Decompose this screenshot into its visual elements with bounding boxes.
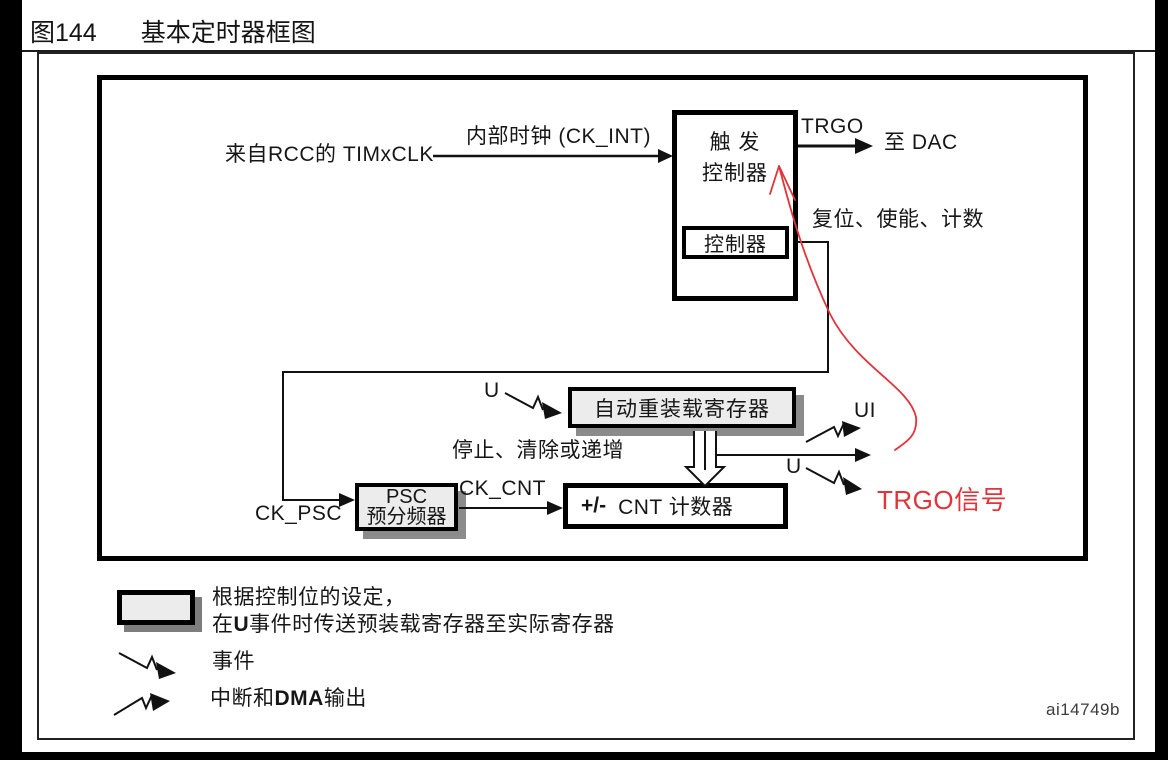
label-ui-interrupt: UI — [854, 400, 876, 423]
trigger-controller-block: 触 发 控制器 — [672, 110, 798, 301]
label-ck-cnt: CK_CNT — [459, 478, 546, 501]
prescaler-block: PSC 预分频器 — [355, 483, 458, 531]
label-u-event-out: U — [786, 456, 802, 479]
counter-block: +/- CNT 计数器 — [563, 483, 788, 529]
scan-edge-right — [1155, 0, 1168, 760]
figure-number: 图144 — [30, 13, 97, 49]
label-reset-enable-count: 复位、使能、计数 — [812, 209, 984, 232]
trigger-controller-label: 触 发 控制器 — [677, 127, 793, 189]
legend-note-line2: 在U事件时传送预装载寄存器至实际寄存器 — [212, 611, 615, 638]
figure-title: 图144 基本定时器框图 — [30, 13, 316, 49]
legend-note-line1: 根据控制位的设定， — [212, 584, 615, 611]
label-from-rcc-timxclk: 来自RCC的 TIMxCLK — [225, 144, 434, 167]
legend-event-label: 事件 — [212, 651, 255, 674]
controller-subblock: 控制器 — [682, 226, 789, 259]
legend-preload-box-icon — [117, 590, 195, 625]
scan-edge-bottom — [0, 752, 1168, 760]
label-internal-clock: 内部时钟 (CK_INT) — [466, 126, 651, 149]
counter-updown-sign: +/- — [581, 494, 606, 518]
scan-edge-left — [0, 0, 22, 760]
label-trgo-signal-annotation: TRGO信号 — [877, 480, 1007, 517]
label-stop-clear-increment: 停止、清除或递增 — [452, 440, 624, 463]
label-u-event-arr: U — [484, 380, 500, 403]
scanned-figure-page: 图144 基本定时器框图 触 发 控制器 控制器 自动重装载寄存器 PSC 预分… — [0, 0, 1168, 760]
label-ck-psc: CK_PSC — [255, 503, 342, 526]
figure-caption: 基本定时器框图 — [141, 13, 316, 49]
label-trgo: TRGO — [801, 116, 864, 139]
label-to-dac: 至 DAC — [884, 132, 958, 155]
auto-reload-register-block: 自动重装载寄存器 — [568, 387, 796, 428]
legend-interrupt-dma-label: 中断和DMA输出 — [210, 688, 367, 711]
artwork-id: ai14749b — [1046, 700, 1120, 720]
legend-preload-note: 根据控制位的设定， 在U事件时传送预装载寄存器至实际寄存器 — [212, 584, 615, 638]
